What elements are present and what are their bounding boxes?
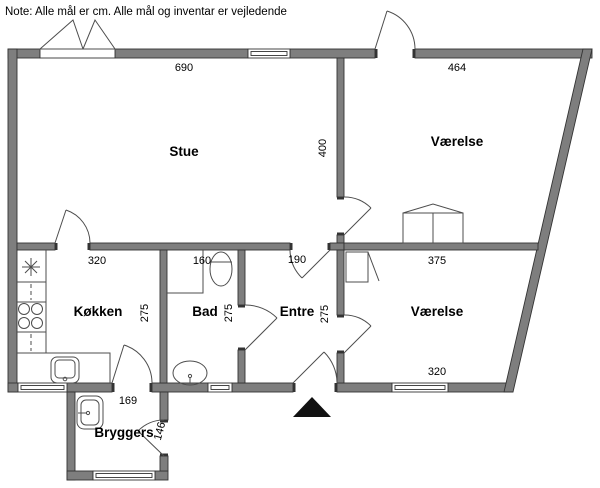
floor-plan-drawing: Note: Alle mål er cm. Alle mål og invent… (0, 0, 600, 488)
kitchen-sink (51, 357, 79, 383)
front-door (293, 352, 337, 392)
label-stue: Stue (169, 144, 199, 159)
window-stue-top (248, 49, 290, 58)
floor-plan-page: Note: Alle mål er cm. Alle mål og invent… (0, 0, 600, 488)
slanted-right-wall (504, 49, 592, 392)
window-vaerelse-syd (392, 383, 448, 392)
label-bad: Bad (192, 304, 218, 319)
label-koekken: Køkken (74, 304, 123, 319)
stove-burners (19, 304, 43, 329)
casement-window-stue (40, 20, 115, 58)
door-vaerelse-nord-exterior (375, 11, 415, 58)
note-text: Note: Alle mål er cm. Alle mål og invent… (5, 6, 287, 18)
window-koekken (18, 383, 67, 392)
label-entre: Entre (280, 304, 315, 319)
dim-koekken-depth: 275 (139, 304, 151, 322)
door-koekken-bryggers (112, 345, 152, 392)
closet (346, 252, 379, 282)
dim-entre-depth: 275 (319, 305, 331, 323)
door-entre-bad (238, 305, 277, 350)
door-stue-vaerelse-nord (337, 197, 371, 235)
door-entre-vaerelse-syd (337, 315, 371, 353)
cooker-hood-icon (22, 258, 40, 276)
dim-koekken-width: 320 (88, 255, 106, 267)
label-vaerelse-nord: Værelse (431, 134, 484, 149)
entrance-arrow (293, 397, 331, 417)
dim-vaerelse-syd-top: 375 (428, 255, 446, 267)
toilet (210, 252, 232, 286)
wardrobe (403, 204, 463, 243)
window-bryggers (93, 471, 155, 480)
label-bryggers: Bryggers (94, 425, 153, 440)
interior-walls (17, 58, 538, 383)
dim-entre-width: 190 (288, 254, 306, 266)
label-vaerelse-syd: Værelse (411, 304, 464, 319)
dim-vaerelse-syd-bottom: 320 (428, 366, 446, 378)
window-bad (208, 383, 232, 392)
dim-bad-depth: 275 (223, 304, 235, 322)
dim-vaerelse-nord-width: 464 (448, 62, 466, 74)
dim-bad-width: 160 (193, 255, 211, 267)
washbasin (173, 361, 207, 385)
door-stue-koekken (55, 210, 90, 250)
dim-bryggers-width: 169 (119, 395, 137, 407)
dim-stue-depth: 400 (317, 139, 329, 157)
dim-stue-width: 690 (175, 62, 193, 74)
